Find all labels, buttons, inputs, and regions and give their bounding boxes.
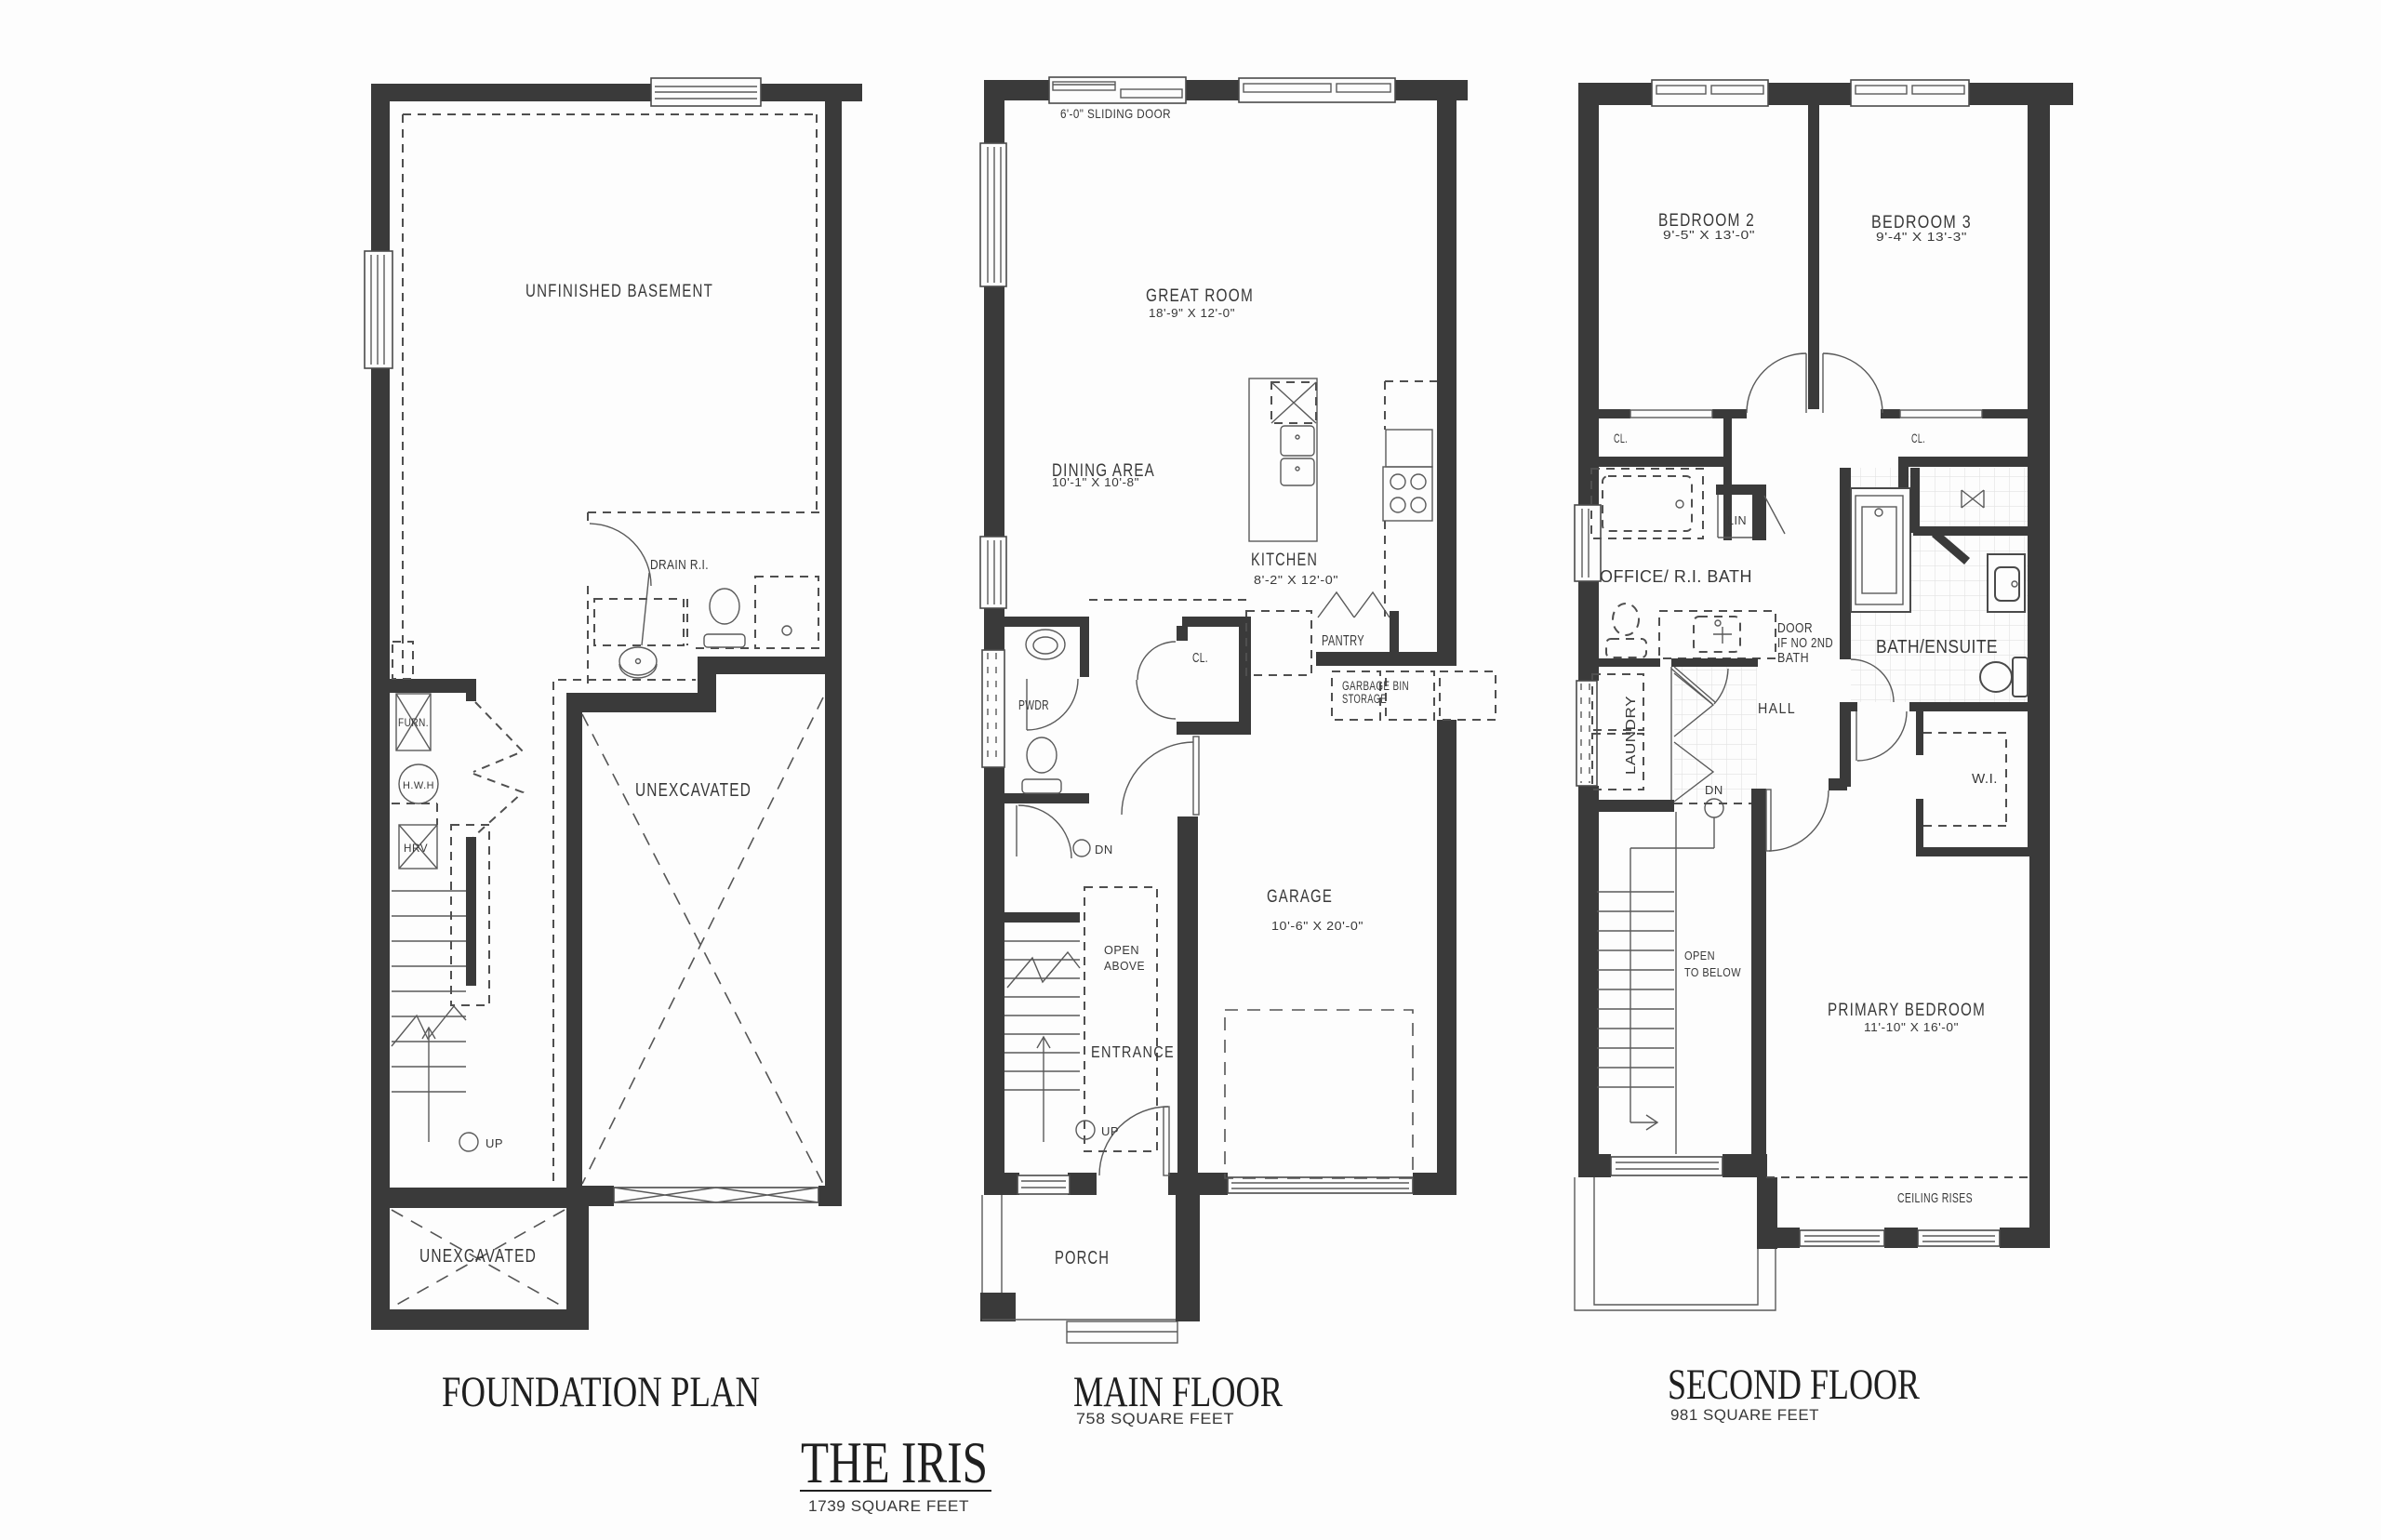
svg-text:18'-9" X 12'-0": 18'-9" X 12'-0" — [1149, 307, 1235, 320]
svg-text:CEILING RISES: CEILING RISES — [1897, 1190, 1973, 1206]
svg-text:1739 SQUARE FEET: 1739 SQUARE FEET — [808, 1497, 969, 1515]
svg-text:HALL: HALL — [1758, 701, 1796, 717]
svg-text:10'-1" X 10'-8": 10'-1" X 10'-8" — [1052, 476, 1139, 489]
svg-text:IF NO 2ND: IF NO 2ND — [1777, 635, 1833, 651]
svg-text:CL.: CL. — [1192, 650, 1208, 666]
svg-text:GREAT ROOM: GREAT ROOM — [1146, 286, 1254, 306]
svg-text:HRV: HRV — [404, 842, 428, 855]
svg-text:981 SQUARE FEET: 981 SQUARE FEET — [1670, 1406, 1819, 1424]
svg-text:STORAGE: STORAGE — [1342, 692, 1387, 706]
svg-text:BEDROOM 2: BEDROOM 2 — [1658, 211, 1755, 231]
svg-text:CL.: CL. — [1911, 431, 1925, 445]
svg-text:THE IRIS: THE IRIS — [801, 1429, 988, 1495]
svg-text:UNFINISHED BASEMENT: UNFINISHED BASEMENT — [525, 282, 713, 301]
svg-text:PANTRY: PANTRY — [1322, 633, 1364, 649]
svg-text:6'-0" SLIDING DOOR: 6'-0" SLIDING DOOR — [1060, 106, 1171, 121]
svg-text:TO BELOW: TO BELOW — [1684, 966, 1741, 979]
svg-text:DN: DN — [1095, 843, 1113, 856]
svg-text:11'-10" X 16'-0": 11'-10" X 16'-0" — [1864, 1021, 1959, 1034]
svg-text:PWDR: PWDR — [1018, 697, 1049, 713]
svg-text:9'-4" X 13'-3": 9'-4" X 13'-3" — [1876, 231, 1967, 244]
svg-text:DN: DN — [1705, 783, 1723, 797]
svg-text:9'-5" X 13'-0": 9'-5" X 13'-0" — [1663, 229, 1755, 242]
svg-text:CL.: CL. — [1614, 431, 1628, 445]
svg-text:OPEN: OPEN — [1104, 944, 1139, 957]
svg-text:SECOND FLOOR: SECOND FLOOR — [1668, 1361, 1920, 1409]
svg-text:OPEN: OPEN — [1684, 949, 1715, 962]
svg-text:ABOVE: ABOVE — [1104, 960, 1145, 973]
svg-text:ENTRANCE: ENTRANCE — [1091, 1042, 1175, 1061]
svg-text:FOUNDATION PLAN: FOUNDATION PLAN — [442, 1368, 760, 1416]
svg-text:H.W.H: H.W.H — [403, 780, 434, 791]
svg-text:PORCH: PORCH — [1055, 1248, 1110, 1268]
svg-text:W.I.: W.I. — [1972, 771, 1998, 787]
svg-text:GARBAGE BIN: GARBAGE BIN — [1342, 679, 1409, 693]
svg-text:KITCHEN: KITCHEN — [1251, 551, 1318, 570]
svg-text:BATH/ENSUITE: BATH/ENSUITE — [1876, 637, 1998, 657]
svg-text:BEDROOM 3: BEDROOM 3 — [1871, 213, 1972, 232]
svg-text:10'-6" X 20'-0": 10'-6" X 20'-0" — [1271, 920, 1363, 933]
svg-text:UNEXCAVATED: UNEXCAVATED — [419, 1246, 537, 1267]
svg-text:LIN: LIN — [1727, 514, 1747, 527]
svg-text:758 SQUARE FEET: 758 SQUARE FEET — [1076, 1410, 1234, 1427]
svg-text:DOOR: DOOR — [1777, 620, 1813, 636]
svg-text:BATH: BATH — [1777, 650, 1809, 666]
svg-text:PRIMARY BEDROOM: PRIMARY BEDROOM — [1828, 1001, 1986, 1020]
svg-text:UP: UP — [486, 1136, 503, 1150]
svg-text:LAUNDRY: LAUNDRY — [1623, 696, 1639, 775]
svg-text:FURN.: FURN. — [398, 716, 429, 729]
svg-text:UNEXCAVATED: UNEXCAVATED — [635, 780, 752, 801]
svg-text:OFFICE/ R.I. BATH: OFFICE/ R.I. BATH — [1600, 567, 1752, 586]
svg-text:DRAIN R.I.: DRAIN R.I. — [650, 557, 709, 573]
svg-text:GARAGE: GARAGE — [1267, 887, 1333, 907]
svg-text:UP: UP — [1101, 1124, 1119, 1138]
svg-text:8'-2" X 12'-0": 8'-2" X 12'-0" — [1254, 574, 1338, 587]
